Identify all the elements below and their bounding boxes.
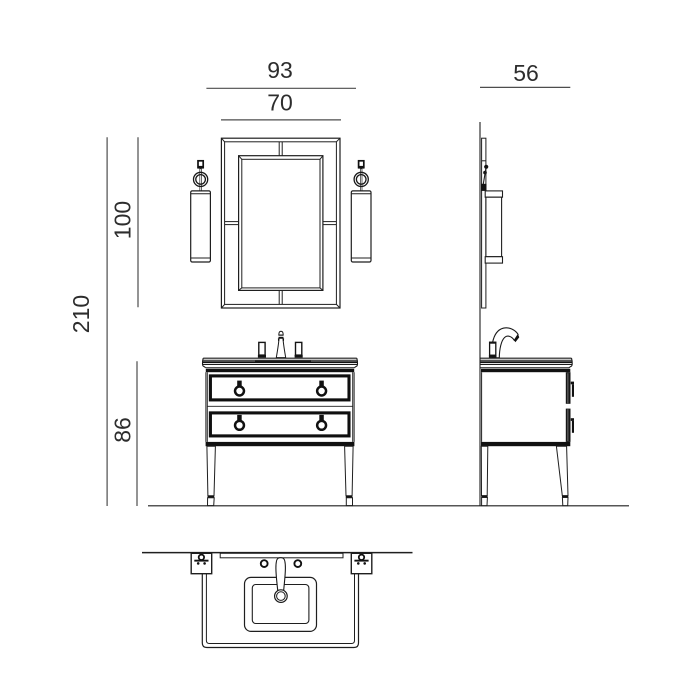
svg-text:100: 100 [110, 201, 136, 239]
svg-text:56: 56 [513, 60, 539, 86]
svg-text:86: 86 [110, 417, 136, 443]
svg-text:70: 70 [267, 90, 293, 116]
svg-text:93: 93 [267, 57, 293, 83]
svg-text:210: 210 [68, 295, 94, 333]
